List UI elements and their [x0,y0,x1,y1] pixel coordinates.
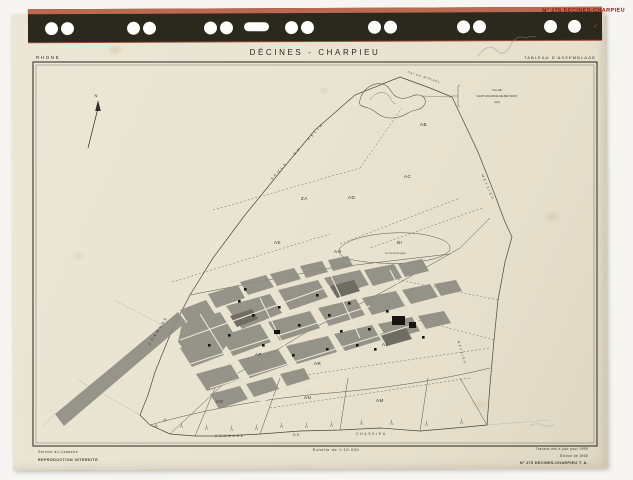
section-label: AC [404,174,412,179]
punch-hole [127,22,140,35]
section-label: BI [397,240,402,245]
edition-line3: N° 275 DECINES-CHARPIEU T. A. [440,460,588,467]
punch-slot [244,22,269,31]
punch-hole [457,20,470,33]
section-label: AE [274,240,281,245]
north-arrow-label: N [95,93,98,98]
south-boundary-label: COMMUNE DE CHASSIEU [215,432,387,438]
punch-hole [143,22,156,35]
cadastre-service-label: Service du Cadastre [38,450,78,454]
pencil-mark [530,424,554,427]
lake-label: Le Grand Large [385,251,406,255]
punch-hole [544,20,557,33]
film-reference-label: N° 275 DECINES-CHARPIEU [533,8,625,14]
neighbor-west-upper-label: VAULX - EN - VELIN [270,122,325,181]
scale-label: Échelle de 1:10.000 [296,447,376,452]
assembly-map: N Cal DE MIRIBEL Cne DE SAINT-MAURICE-DE… [30,48,605,460]
section-label: AD [348,195,356,200]
neighbor-commune-note: Cne DE SAINT-MAURICE-DE-BEYNOST (Ain) [452,85,518,107]
edition-note: Travaux mis à jour pour 1959 Édition de … [440,446,588,467]
punch-hole [301,21,314,34]
section-label: ZA [301,196,308,201]
edition-line1: Travaux mis à jour pour 1959 [440,446,588,453]
section-label: AM [376,398,384,403]
punch-hole [285,21,298,34]
north-arrow: N [88,93,101,148]
tree-symbols [154,418,463,431]
punch-hole [368,21,381,34]
reproduction-notice: REPRODUCTION INTERDITE [38,458,98,462]
punch-hole [568,20,581,33]
commune-boundary [140,77,512,436]
neighbor-southeast-label: MEYZIEU [456,340,467,365]
punch-hole [45,22,58,35]
edition-line2: Édition de 1965 [440,453,588,460]
section-label: AR [314,361,322,366]
neighbor-top-line2: SAINT-MAURICE-DE-BEYNOST [476,94,517,98]
map-frame-inner [36,65,594,443]
canal-label: Cal DE MIRIBEL [407,70,441,85]
scanned-document-photo: N° 275 DECINES-CHARPIEU ✓ RHONE DÉCINES … [0,0,633,480]
section-label: AH [334,249,341,254]
section-boundaries [172,108,498,408]
neighbor-top-line3: (Ain) [494,100,500,104]
neighbor-top-line1: Cne DE [492,88,502,92]
punch-hole [204,21,217,34]
punch-hole [61,22,74,35]
section-label: AP [255,352,262,357]
south-word-de: DE [293,433,301,437]
punch-hole [220,21,233,34]
lake-grand-large [339,233,450,264]
punch-hole [384,21,397,34]
south-word-commune: COMMUNE [215,434,245,438]
red-check-mark: ✓ [592,21,599,30]
section-label: AO [216,399,224,404]
south-word-chassieu: CHASSIEU [356,432,387,436]
section-label: AN [304,395,311,400]
section-label: AL [382,342,389,347]
map-frame-outer [33,62,597,446]
section-label: AB [420,122,427,127]
